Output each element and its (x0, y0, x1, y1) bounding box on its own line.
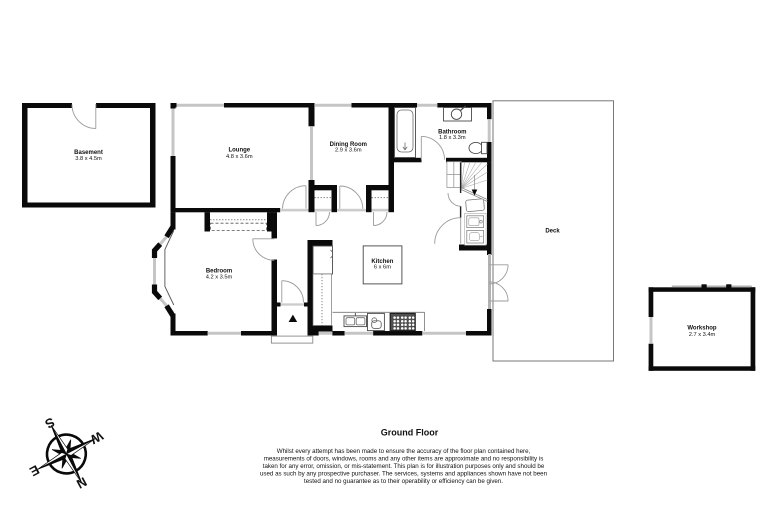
svg-text:W: W (87, 428, 106, 447)
svg-text:taken for any error, omission,: taken for any error, omission, or mis-st… (263, 463, 545, 470)
svg-text:2.9 x 3.6m: 2.9 x 3.6m (335, 148, 362, 154)
svg-text:Workshop: Workshop (687, 325, 717, 331)
svg-text:S: S (42, 414, 57, 431)
svg-text:Whilst every attempt has been: Whilst every attempt has been made to en… (277, 448, 531, 455)
svg-text:E: E (27, 462, 42, 479)
svg-text:3.8 x 4.5m: 3.8 x 4.5m (75, 156, 102, 162)
svg-text:1.8 x 3.3m: 1.8 x 3.3m (439, 135, 466, 141)
svg-text:N: N (74, 474, 89, 492)
svg-text:measurements of doors, windows: measurements of doors, windows, rooms an… (264, 455, 544, 462)
svg-text:4.8 x 3.6m: 4.8 x 3.6m (226, 154, 253, 160)
svg-text:Lounge: Lounge (228, 148, 250, 154)
svg-text:6 x 6m: 6 x 6m (374, 265, 391, 271)
svg-text:Deck: Deck (545, 229, 560, 235)
svg-text:4.2 x 3.5m: 4.2 x 3.5m (206, 274, 233, 280)
svg-text:tested and no guarantee as to: tested and no guarantee as to their oper… (304, 478, 503, 485)
svg-text:2.7 x 3.4m: 2.7 x 3.4m (689, 332, 716, 338)
svg-text:Ground Floor: Ground Floor (381, 428, 439, 438)
svg-text:used as such by any prospectiv: used as such by any prospective purchase… (260, 471, 548, 478)
